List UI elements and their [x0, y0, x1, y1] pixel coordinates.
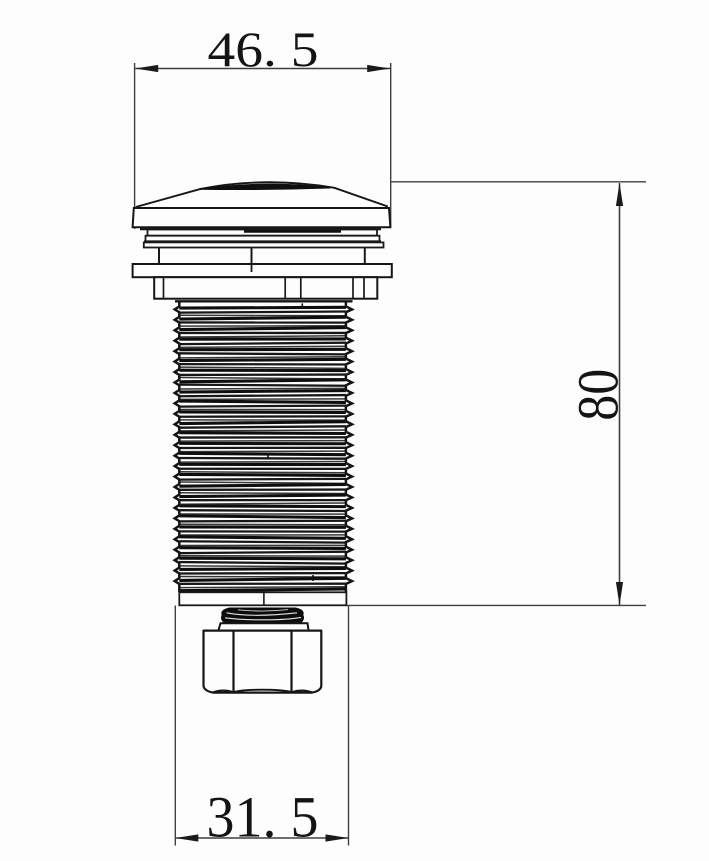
svg-text:31. 5: 31. 5: [207, 785, 319, 850]
svg-text:46. 5: 46. 5: [208, 21, 319, 77]
svg-text:80: 80: [566, 369, 631, 421]
